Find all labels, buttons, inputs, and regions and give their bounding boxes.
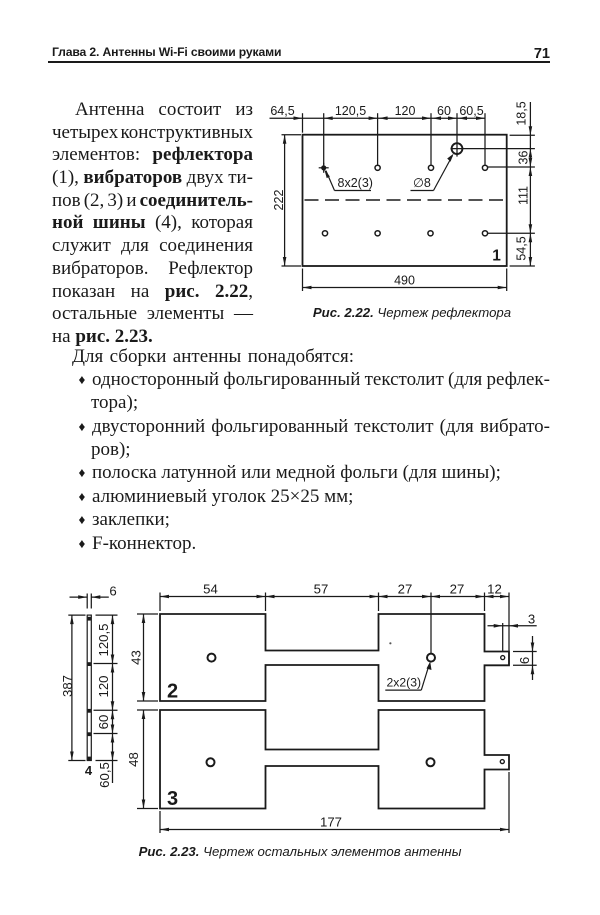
svg-text:120,5: 120,5 [335, 104, 366, 118]
svg-text:222: 222 [272, 190, 286, 211]
svg-text:111: 111 [517, 186, 531, 205]
svg-text:54: 54 [203, 582, 218, 597]
svg-text:36: 36 [517, 151, 531, 165]
svg-text:27: 27 [450, 582, 465, 597]
svg-text:60: 60 [96, 715, 111, 730]
svg-text:60,5: 60,5 [97, 762, 112, 788]
svg-text:2: 2 [167, 681, 178, 703]
svg-text:27: 27 [398, 582, 413, 597]
svg-text:2x2(3): 2x2(3) [387, 676, 422, 690]
svg-text:3: 3 [528, 612, 535, 627]
svg-text:54,5: 54,5 [515, 236, 529, 260]
svg-text:57: 57 [314, 582, 329, 597]
svg-text:64,5: 64,5 [270, 104, 294, 118]
svg-text:6: 6 [517, 657, 532, 664]
svg-text:48: 48 [126, 752, 141, 767]
svg-text:18,5: 18,5 [515, 101, 529, 125]
svg-text:12: 12 [487, 582, 502, 597]
svg-text:6: 6 [109, 584, 116, 599]
svg-text:8x2(3): 8x2(3) [338, 176, 373, 190]
svg-text:43: 43 [129, 650, 144, 665]
svg-text:∅8: ∅8 [413, 176, 431, 190]
svg-text:60: 60 [437, 104, 451, 118]
svg-text:120: 120 [96, 675, 111, 697]
svg-text:4: 4 [85, 763, 93, 778]
svg-text:120,5: 120,5 [96, 623, 111, 656]
svg-text:3: 3 [167, 788, 178, 810]
svg-text:120: 120 [395, 104, 416, 118]
svg-text:60,5: 60,5 [459, 104, 483, 118]
svg-text:490: 490 [394, 274, 415, 288]
svg-text:177: 177 [320, 815, 342, 830]
svg-text:1: 1 [492, 248, 501, 265]
svg-text:387: 387 [60, 675, 75, 697]
